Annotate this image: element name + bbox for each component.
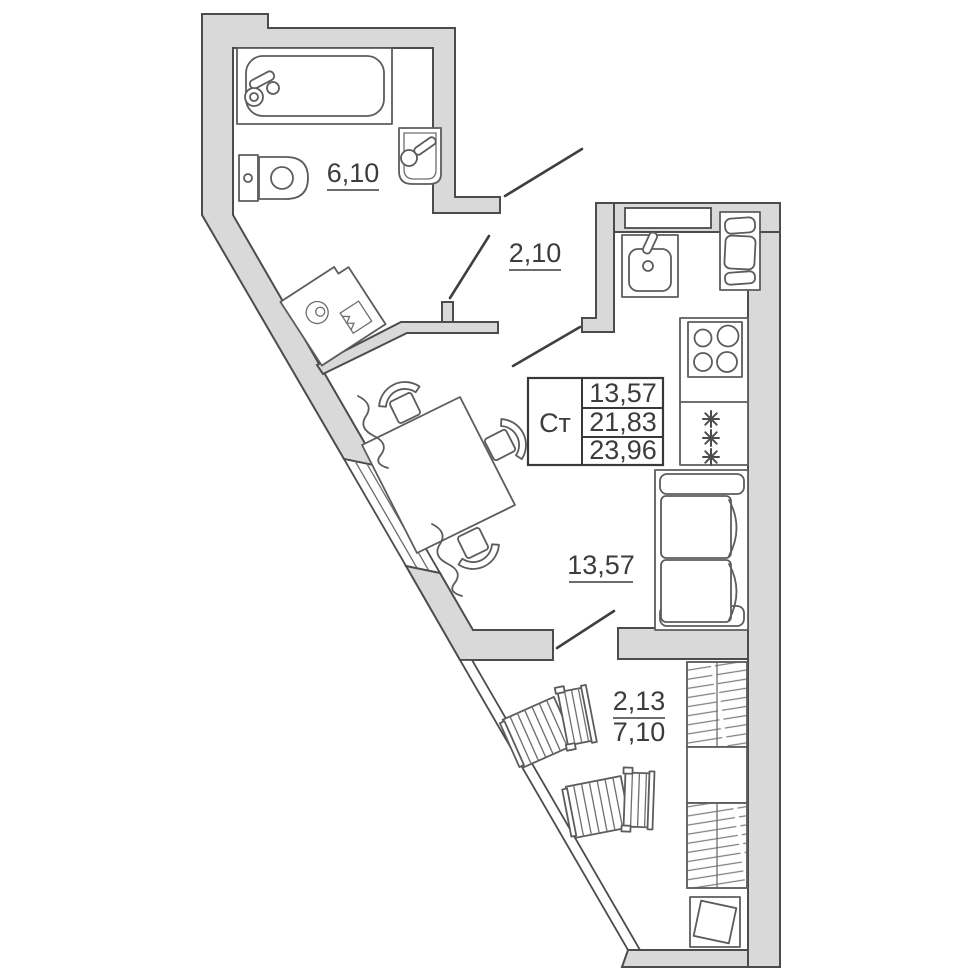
wall-kitchen-left — [582, 203, 614, 332]
wardrobe-hatched-top — [687, 662, 747, 747]
fridge-icon — [720, 212, 760, 290]
legend-value-row1: 13,57 — [589, 378, 657, 408]
bathroom-door-leaf — [450, 236, 489, 298]
vent-niche — [625, 208, 711, 228]
stove-icon — [688, 322, 742, 377]
living-area-label: 13,57 — [567, 550, 635, 580]
wardrobe-hatched-bottom — [687, 803, 747, 888]
wall-stub-bathroom-door — [442, 302, 453, 322]
legend-type-label: Ст — [539, 408, 571, 438]
wardrobe-plain — [687, 747, 747, 803]
drying-rack-icon — [496, 676, 611, 778]
entrance-door-leaf — [505, 149, 582, 196]
corridor-upper-label: 2,13 — [613, 686, 666, 716]
legend-value-row2: 21,83 — [589, 407, 657, 437]
legend-value-row3: 23,96 — [589, 435, 657, 465]
wash-basin-icon — [399, 128, 441, 184]
wall-living-bottom — [618, 628, 748, 659]
sofa-icon — [655, 470, 748, 630]
drying-rack-icon — [560, 762, 666, 848]
living-door-leaf — [557, 611, 614, 648]
stool-icon — [690, 897, 740, 947]
wall-right — [748, 203, 780, 967]
hob-marks — [703, 411, 719, 465]
bathtub-icon — [237, 48, 392, 124]
corridor-lower-label: 7,10 — [613, 717, 666, 747]
legend-table: Ст 13,57 21,83 23,96 — [528, 378, 663, 465]
wall-diagonal-lower — [406, 566, 553, 660]
floor-plan: 6,10 2,10 13,57 2,13 7,10 Ст 13,57 21,83… — [0, 0, 980, 980]
dining-table-icon — [362, 375, 533, 576]
kitchen-sink-icon — [622, 231, 678, 297]
kitchen-door-leaf — [513, 327, 580, 366]
hall-area-label: 2,10 — [509, 238, 562, 268]
toilet-icon — [239, 155, 308, 201]
floor-plan-page: 6,10 2,10 13,57 2,13 7,10 Ст 13,57 21,83… — [0, 0, 980, 980]
bathroom-area-label: 6,10 — [327, 158, 380, 188]
